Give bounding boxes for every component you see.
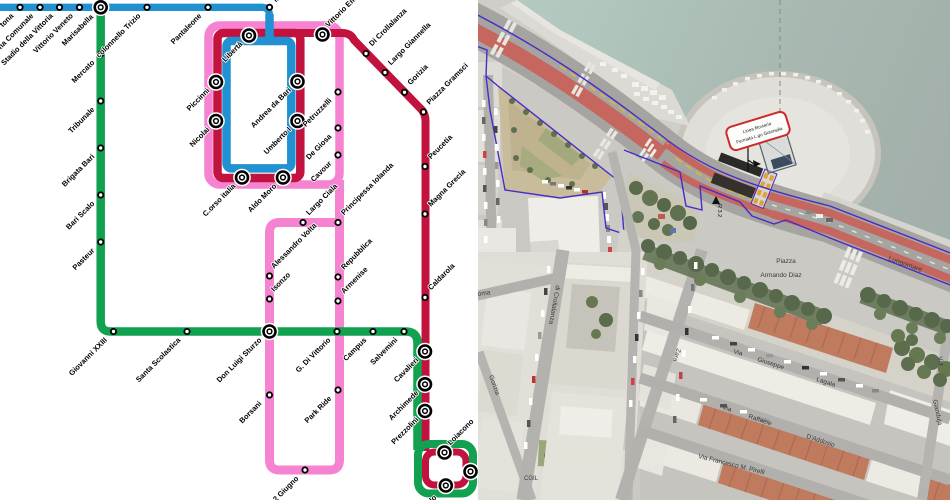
svg-text:R 3.2: R 3.2 bbox=[716, 204, 722, 217]
svg-text:Armando Diaz: Armando Diaz bbox=[760, 272, 801, 279]
svg-text:CGIL: CGIL bbox=[524, 476, 539, 482]
svg-text:Piazza: Piazza bbox=[776, 258, 796, 265]
